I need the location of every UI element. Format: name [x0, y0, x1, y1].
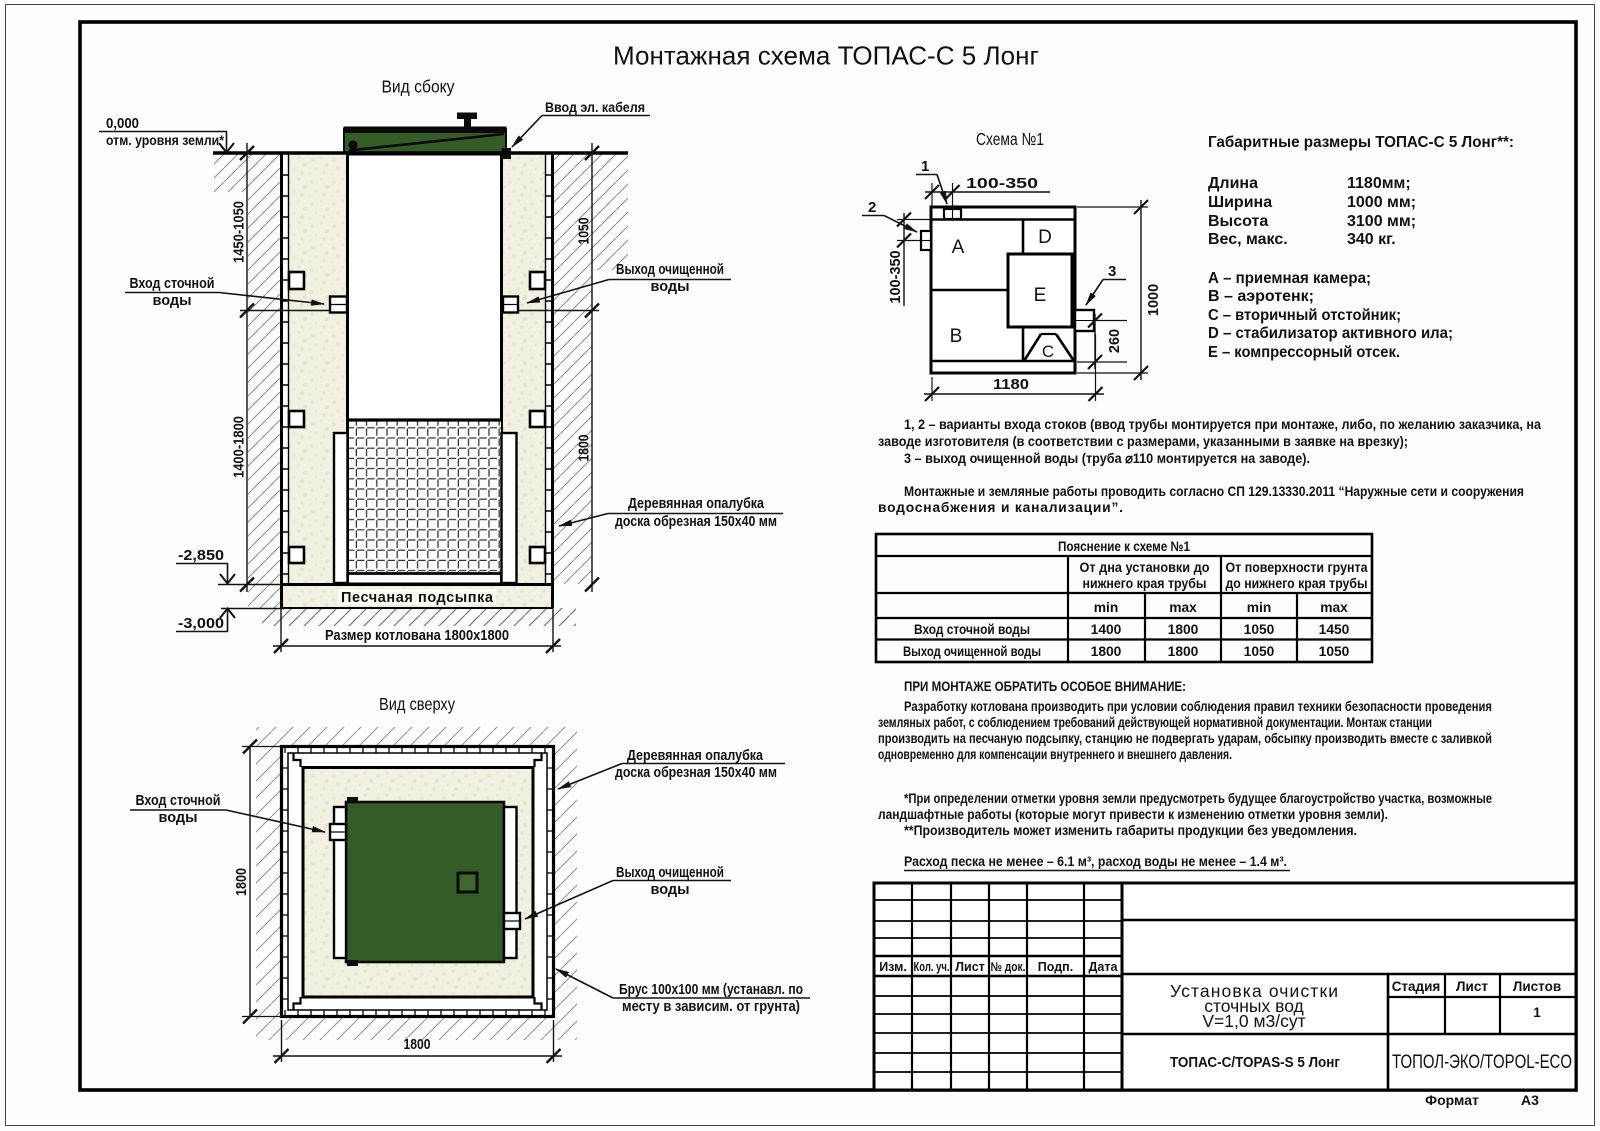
svg-text:V=1,0 м3/сут: V=1,0 м3/сут — [1202, 1011, 1305, 1031]
svg-text:1800: 1800 — [233, 868, 250, 896]
svg-text:Высота: Высота — [1208, 213, 1268, 230]
svg-text:1000 мм;: 1000 мм; — [1347, 194, 1416, 211]
svg-text:А3: А3 — [1521, 1092, 1539, 1108]
svg-text:доска обрезная 150х40 мм: доска обрезная 150х40 мм — [615, 765, 777, 781]
svg-text:min: min — [1094, 600, 1119, 615]
svg-text:Ширина: Ширина — [1208, 194, 1272, 211]
svg-text:производить на песчаную подсып: производить на песчаную подсыпку, станци… — [878, 731, 1492, 746]
svg-text:340 кг.: 340 кг. — [1347, 231, 1396, 248]
svg-text:3 – выход очищенной воды (труб: 3 – выход очищенной воды (труба ⌀110 мон… — [904, 451, 1310, 466]
svg-text:1: 1 — [921, 158, 929, 175]
svg-text:260: 260 — [1107, 329, 1123, 353]
svg-text:водоснабжения и канализации”.: водоснабжения и канализации”. — [878, 500, 1123, 515]
svg-text:D – стабилизатор активного ила: D – стабилизатор активного ила; — [1208, 325, 1453, 342]
svg-text:Выход очищенной: Выход очищенной — [616, 865, 724, 881]
svg-text:Вес, макс.: Вес, макс. — [1208, 231, 1288, 248]
svg-text:одновременно для компенсации в: одновременно для компенсации внутреннего… — [878, 747, 1232, 762]
svg-text:Листов: Листов — [1513, 979, 1561, 994]
svg-text:1: 1 — [1533, 1005, 1541, 1020]
svg-text:Вид сбоку: Вид сбоку — [382, 77, 455, 97]
svg-text:С – вторичный отстойник;: С – вторичный отстойник; — [1208, 307, 1401, 324]
svg-text:2: 2 — [868, 199, 876, 216]
svg-text:1400: 1400 — [1091, 622, 1122, 637]
svg-text:воды: воды — [651, 882, 690, 898]
svg-text:1180: 1180 — [993, 376, 1029, 393]
svg-text:Лист: Лист — [1456, 979, 1488, 994]
svg-text:0,000: 0,000 — [106, 115, 139, 132]
svg-text:Разработку котлована производи: Разработку котлована производить при усл… — [904, 699, 1492, 714]
svg-text:C: C — [1042, 342, 1054, 361]
svg-text:D: D — [1038, 227, 1052, 248]
svg-text:-3,000: -3,000 — [178, 615, 224, 632]
svg-text:1800: 1800 — [1168, 644, 1199, 659]
svg-text:3100 мм;: 3100 мм; — [1347, 213, 1416, 230]
svg-text:Длина: Длина — [1208, 175, 1258, 192]
svg-text:1050: 1050 — [1244, 644, 1275, 659]
svg-text:Схема №1: Схема №1 — [976, 129, 1044, 149]
svg-text:min: min — [1247, 600, 1272, 615]
svg-text:ТОПАС-С/TOPAS-S 5 Лонг: ТОПАС-С/TOPAS-S 5 Лонг — [1170, 1055, 1340, 1071]
svg-text:Деревянная опалубка: Деревянная опалубка — [627, 748, 764, 764]
svg-text:Изм.: Изм. — [879, 960, 907, 974]
svg-text:1, 2 – варианты входа стоков: 1, 2 – варианты входа стоков (ввод трубы… — [904, 417, 1541, 432]
svg-text:Ввод эл. кабеля: Ввод эл. кабеля — [545, 100, 645, 115]
svg-text:Дата: Дата — [1089, 960, 1119, 974]
svg-text:Брус 100х100 мм (устанавл. по: Брус 100х100 мм (устанавл. по — [619, 982, 803, 998]
svg-text:max: max — [1169, 600, 1197, 615]
svg-text:1450-1050: 1450-1050 — [231, 201, 248, 263]
svg-text:A: A — [952, 237, 965, 258]
svg-text:**Производитель может изменить: **Производитель может изменить габариты … — [904, 823, 1357, 838]
svg-text:1050: 1050 — [1319, 644, 1350, 659]
svg-text:*При определении отметки уровн: *При определении отметки уровня земли пр… — [904, 791, 1492, 806]
svg-text:ландшафтные работы (которые мо: ландшафтные работы (которые могут привес… — [878, 807, 1388, 822]
svg-text:B: B — [950, 326, 963, 347]
svg-text:1050: 1050 — [576, 218, 593, 245]
svg-text:max: max — [1320, 600, 1348, 615]
svg-text:-2,850: -2,850 — [178, 547, 224, 564]
svg-text:Деревянная опалубка: Деревянная опалубка — [628, 496, 765, 512]
svg-text:месту в зависим. от грунта): месту в зависим. от грунта) — [622, 999, 800, 1015]
svg-text:Расход песка не менее – 6.1 м³: Расход песка не менее – 6.1 м³, расход в… — [904, 854, 1287, 869]
svg-text:1800: 1800 — [404, 1036, 431, 1053]
svg-text:Вход сточной: Вход сточной — [136, 793, 221, 809]
svg-text:От поверхности грунта: От поверхности грунта — [1226, 560, 1368, 575]
svg-text:В – аэротенк;: В – аэротенк; — [1208, 288, 1314, 305]
svg-text:1400-1800: 1400-1800 — [231, 416, 248, 478]
svg-text:Вход сточной: Вход сточной — [130, 276, 215, 292]
svg-text:1000: 1000 — [1146, 284, 1162, 316]
svg-text:1450: 1450 — [1319, 622, 1350, 637]
svg-text:Вид сверху: Вид сверху — [379, 694, 455, 714]
svg-text:Размер котлована 1800х1800: Размер котлована 1800х1800 — [325, 627, 509, 644]
svg-text:Лист: Лист — [955, 960, 985, 974]
svg-text:заводе изготовителя (в соответ: заводе изготовителя (в соответствии с ра… — [878, 434, 1408, 449]
svg-text:1180мм;: 1180мм; — [1347, 175, 1411, 192]
svg-text:3: 3 — [1108, 263, 1116, 280]
svg-text:Выход очищенной: Выход очищенной — [616, 262, 724, 278]
svg-text:Стадия: Стадия — [1392, 979, 1441, 994]
svg-text:Е – компрессорный отсек.: Е – компрессорный отсек. — [1208, 344, 1400, 361]
svg-text:E: E — [1034, 285, 1047, 306]
svg-text:ПРИ МОНТАЖЕ ОБРАТИТЬ ОСОБОЕ ВН: ПРИ МОНТАЖЕ ОБРАТИТЬ ОСОБОЕ ВНИМАНИЕ: — [904, 679, 1186, 694]
svg-text:1800: 1800 — [1091, 644, 1122, 659]
svg-text:№ док.: № док. — [991, 960, 1026, 974]
svg-text:От дна установки до: От дна установки до — [1080, 560, 1210, 575]
svg-text:Пояснение к схеме №1: Пояснение к схеме №1 — [1058, 539, 1190, 554]
svg-text:Выход очищенной воды: Выход очищенной воды — [903, 644, 1041, 659]
svg-text:до нижнего края трубы: до нижнего края трубы — [1226, 576, 1368, 591]
svg-text:А – приемная камера;: А – приемная камера; — [1208, 270, 1371, 287]
svg-text:Монтажная схема ТОПАС-С 5 Лонг: Монтажная схема ТОПАС-С 5 Лонг — [613, 41, 1039, 71]
svg-text:1050: 1050 — [1244, 622, 1275, 637]
svg-text:земляных работ, с соблюдением: земляных работ, с соблюдением требований… — [878, 715, 1432, 730]
svg-text:Монтажные и земляные работы пр: Монтажные и земляные работы проводить со… — [904, 484, 1524, 499]
svg-text:Габаритные размеры ТОПАС-С 5 Л: Габаритные размеры ТОПАС-С 5 Лонг**: — [1208, 134, 1514, 151]
svg-text:отм. уровня земли*: отм. уровня земли* — [106, 133, 225, 148]
svg-text:100-350: 100-350 — [888, 250, 904, 303]
svg-text:1800: 1800 — [576, 435, 593, 462]
svg-text:воды: воды — [651, 279, 690, 295]
svg-text:Формат: Формат — [1425, 1092, 1479, 1108]
svg-text:воды: воды — [159, 810, 198, 826]
svg-text:нижнего края трубы: нижнего края трубы — [1083, 576, 1207, 591]
svg-text:Вход сточной воды: Вход сточной воды — [914, 622, 1030, 637]
svg-text:100-350: 100-350 — [966, 176, 1038, 192]
svg-text:1800: 1800 — [1168, 622, 1199, 637]
svg-text:Подп.: Подп. — [1038, 960, 1073, 974]
svg-text:доска обрезная 150х40 мм: доска обрезная 150х40 мм — [615, 514, 777, 530]
svg-text:воды: воды — [153, 293, 192, 309]
svg-text:ТОПОЛ-ЭКО/TOPOL-ECO: ТОПОЛ-ЭКО/TOPOL-ECO — [1392, 1051, 1572, 1073]
svg-text:Песчаная подсыпка: Песчаная подсыпка — [341, 590, 494, 606]
svg-text:Кол. уч.: Кол. уч. — [914, 960, 950, 974]
